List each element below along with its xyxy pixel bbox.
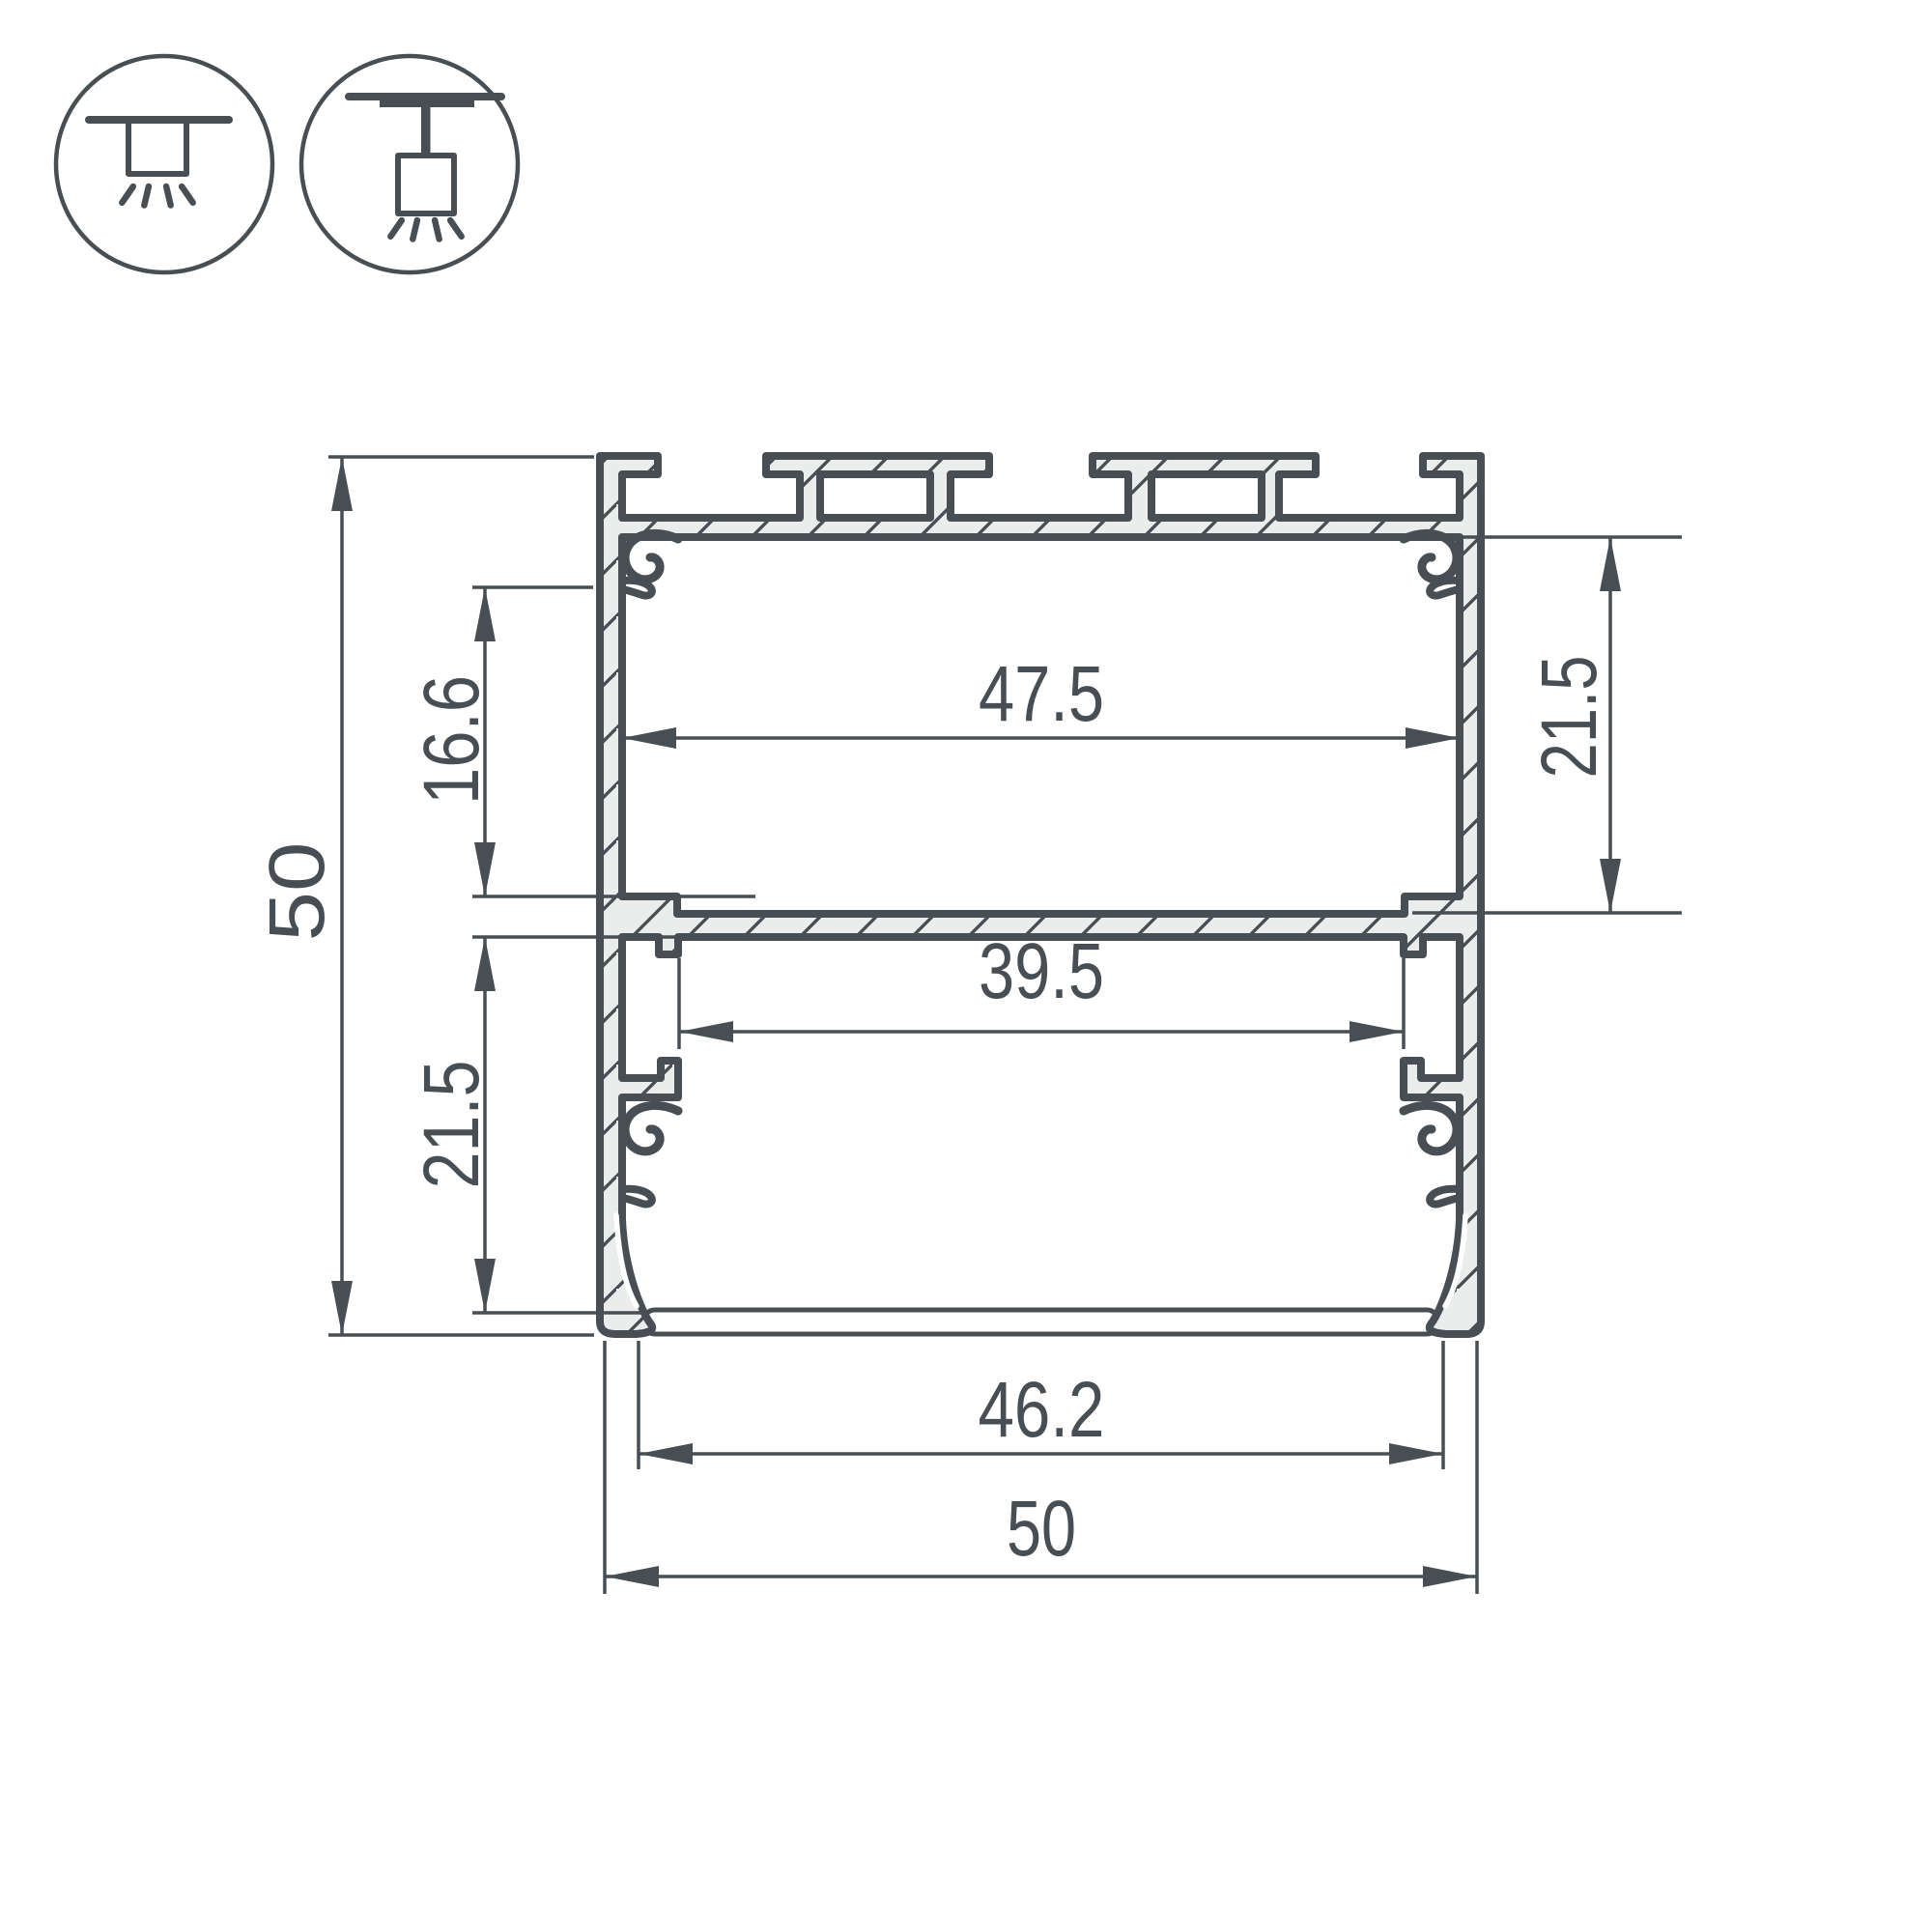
svg-text:50: 50 [1007, 1485, 1076, 1573]
svg-text:39.5: 39.5 [979, 927, 1104, 1015]
svg-text:50: 50 [253, 842, 341, 942]
svg-text:21.5: 21.5 [1525, 656, 1613, 779]
svg-text:47.5: 47.5 [979, 650, 1104, 738]
svg-text:21.5: 21.5 [408, 1061, 496, 1189]
svg-text:16.6: 16.6 [408, 675, 496, 805]
svg-text:46.2: 46.2 [979, 1366, 1105, 1454]
